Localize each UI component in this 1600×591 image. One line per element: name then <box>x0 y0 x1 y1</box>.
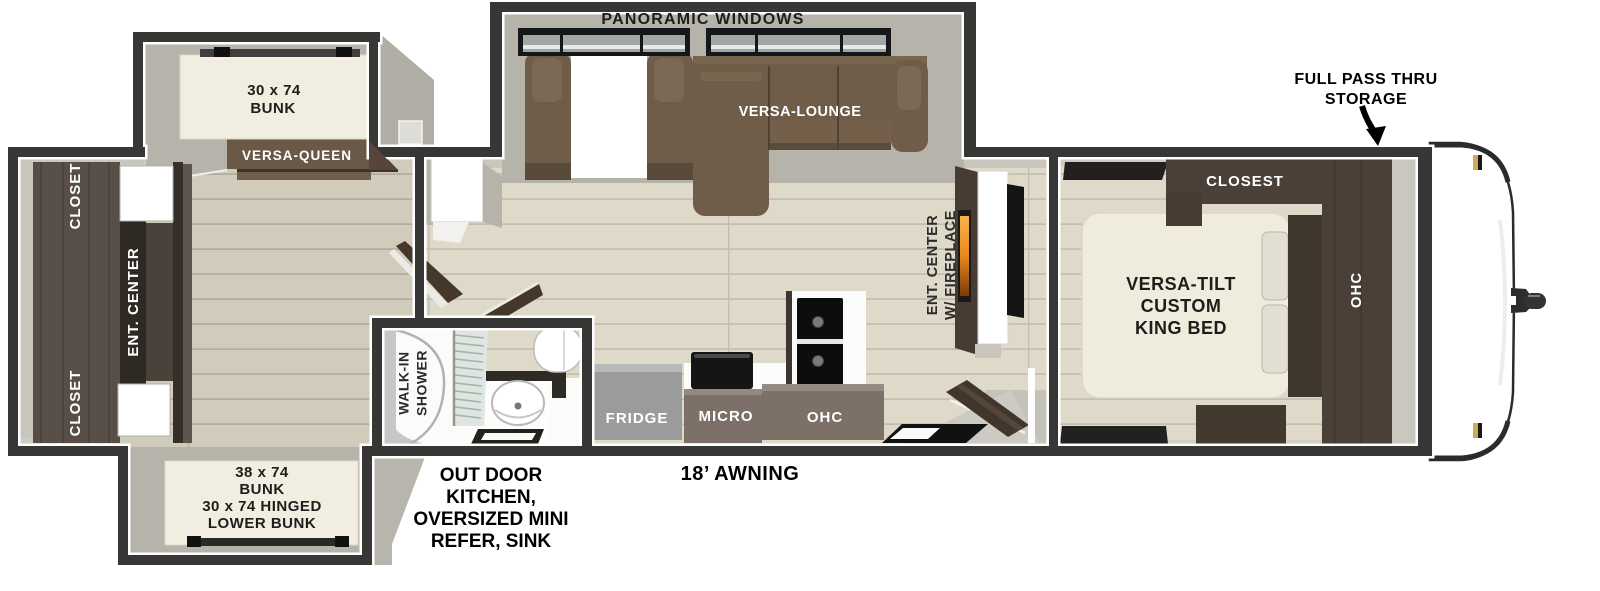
svg-text:ENT. CENTER: ENT. CENTER <box>925 215 941 316</box>
svg-text:OHC: OHC <box>1348 272 1365 308</box>
svg-text:KITCHEN,: KITCHEN, <box>446 487 536 508</box>
svg-text:OVERSIZED MINI: OVERSIZED MINI <box>413 509 568 530</box>
svg-text:CLOSEST: CLOSEST <box>1206 173 1284 190</box>
svg-text:CLOSET: CLOSET <box>67 163 84 230</box>
svg-text:VERSA-TILT: VERSA-TILT <box>1126 274 1236 294</box>
svg-text:STORAGE: STORAGE <box>1325 91 1407 108</box>
svg-text:BUNK: BUNK <box>239 481 284 498</box>
svg-text:CLOSET: CLOSET <box>67 370 84 437</box>
svg-text:PANORAMIC WINDOWS: PANORAMIC WINDOWS <box>601 11 804 28</box>
svg-text:ENT. CENTER: ENT. CENTER <box>125 247 142 356</box>
svg-text:FULL PASS THRU: FULL PASS THRU <box>1294 71 1437 88</box>
svg-text:MICRO: MICRO <box>699 408 754 425</box>
svg-text:VERSA-LOUNGE: VERSA-LOUNGE <box>739 104 862 120</box>
svg-text:BUNK: BUNK <box>250 100 295 117</box>
svg-text:38 x 74: 38 x 74 <box>235 464 289 481</box>
svg-text:W/ FIREPLACE: W/ FIREPLACE <box>943 210 959 320</box>
svg-text:KING BED: KING BED <box>1135 318 1227 338</box>
svg-text:CUSTOM: CUSTOM <box>1141 296 1222 316</box>
svg-text:OUT DOOR: OUT DOOR <box>440 465 543 486</box>
svg-text:VERSA-QUEEN: VERSA-QUEEN <box>242 148 352 163</box>
svg-text:18’ AWNING: 18’ AWNING <box>681 463 800 485</box>
svg-text:30 x 74 HINGED: 30 x 74 HINGED <box>202 498 322 515</box>
svg-text:30 x 74: 30 x 74 <box>247 82 301 99</box>
svg-text:OHC: OHC <box>807 409 843 426</box>
svg-text:WALK-IN: WALK-IN <box>396 351 412 414</box>
svg-text:REFER, SINK: REFER, SINK <box>431 531 552 552</box>
svg-text:LOWER BUNK: LOWER BUNK <box>208 515 316 532</box>
svg-text:FRIDGE: FRIDGE <box>606 410 669 427</box>
svg-text:SHOWER: SHOWER <box>414 350 430 416</box>
